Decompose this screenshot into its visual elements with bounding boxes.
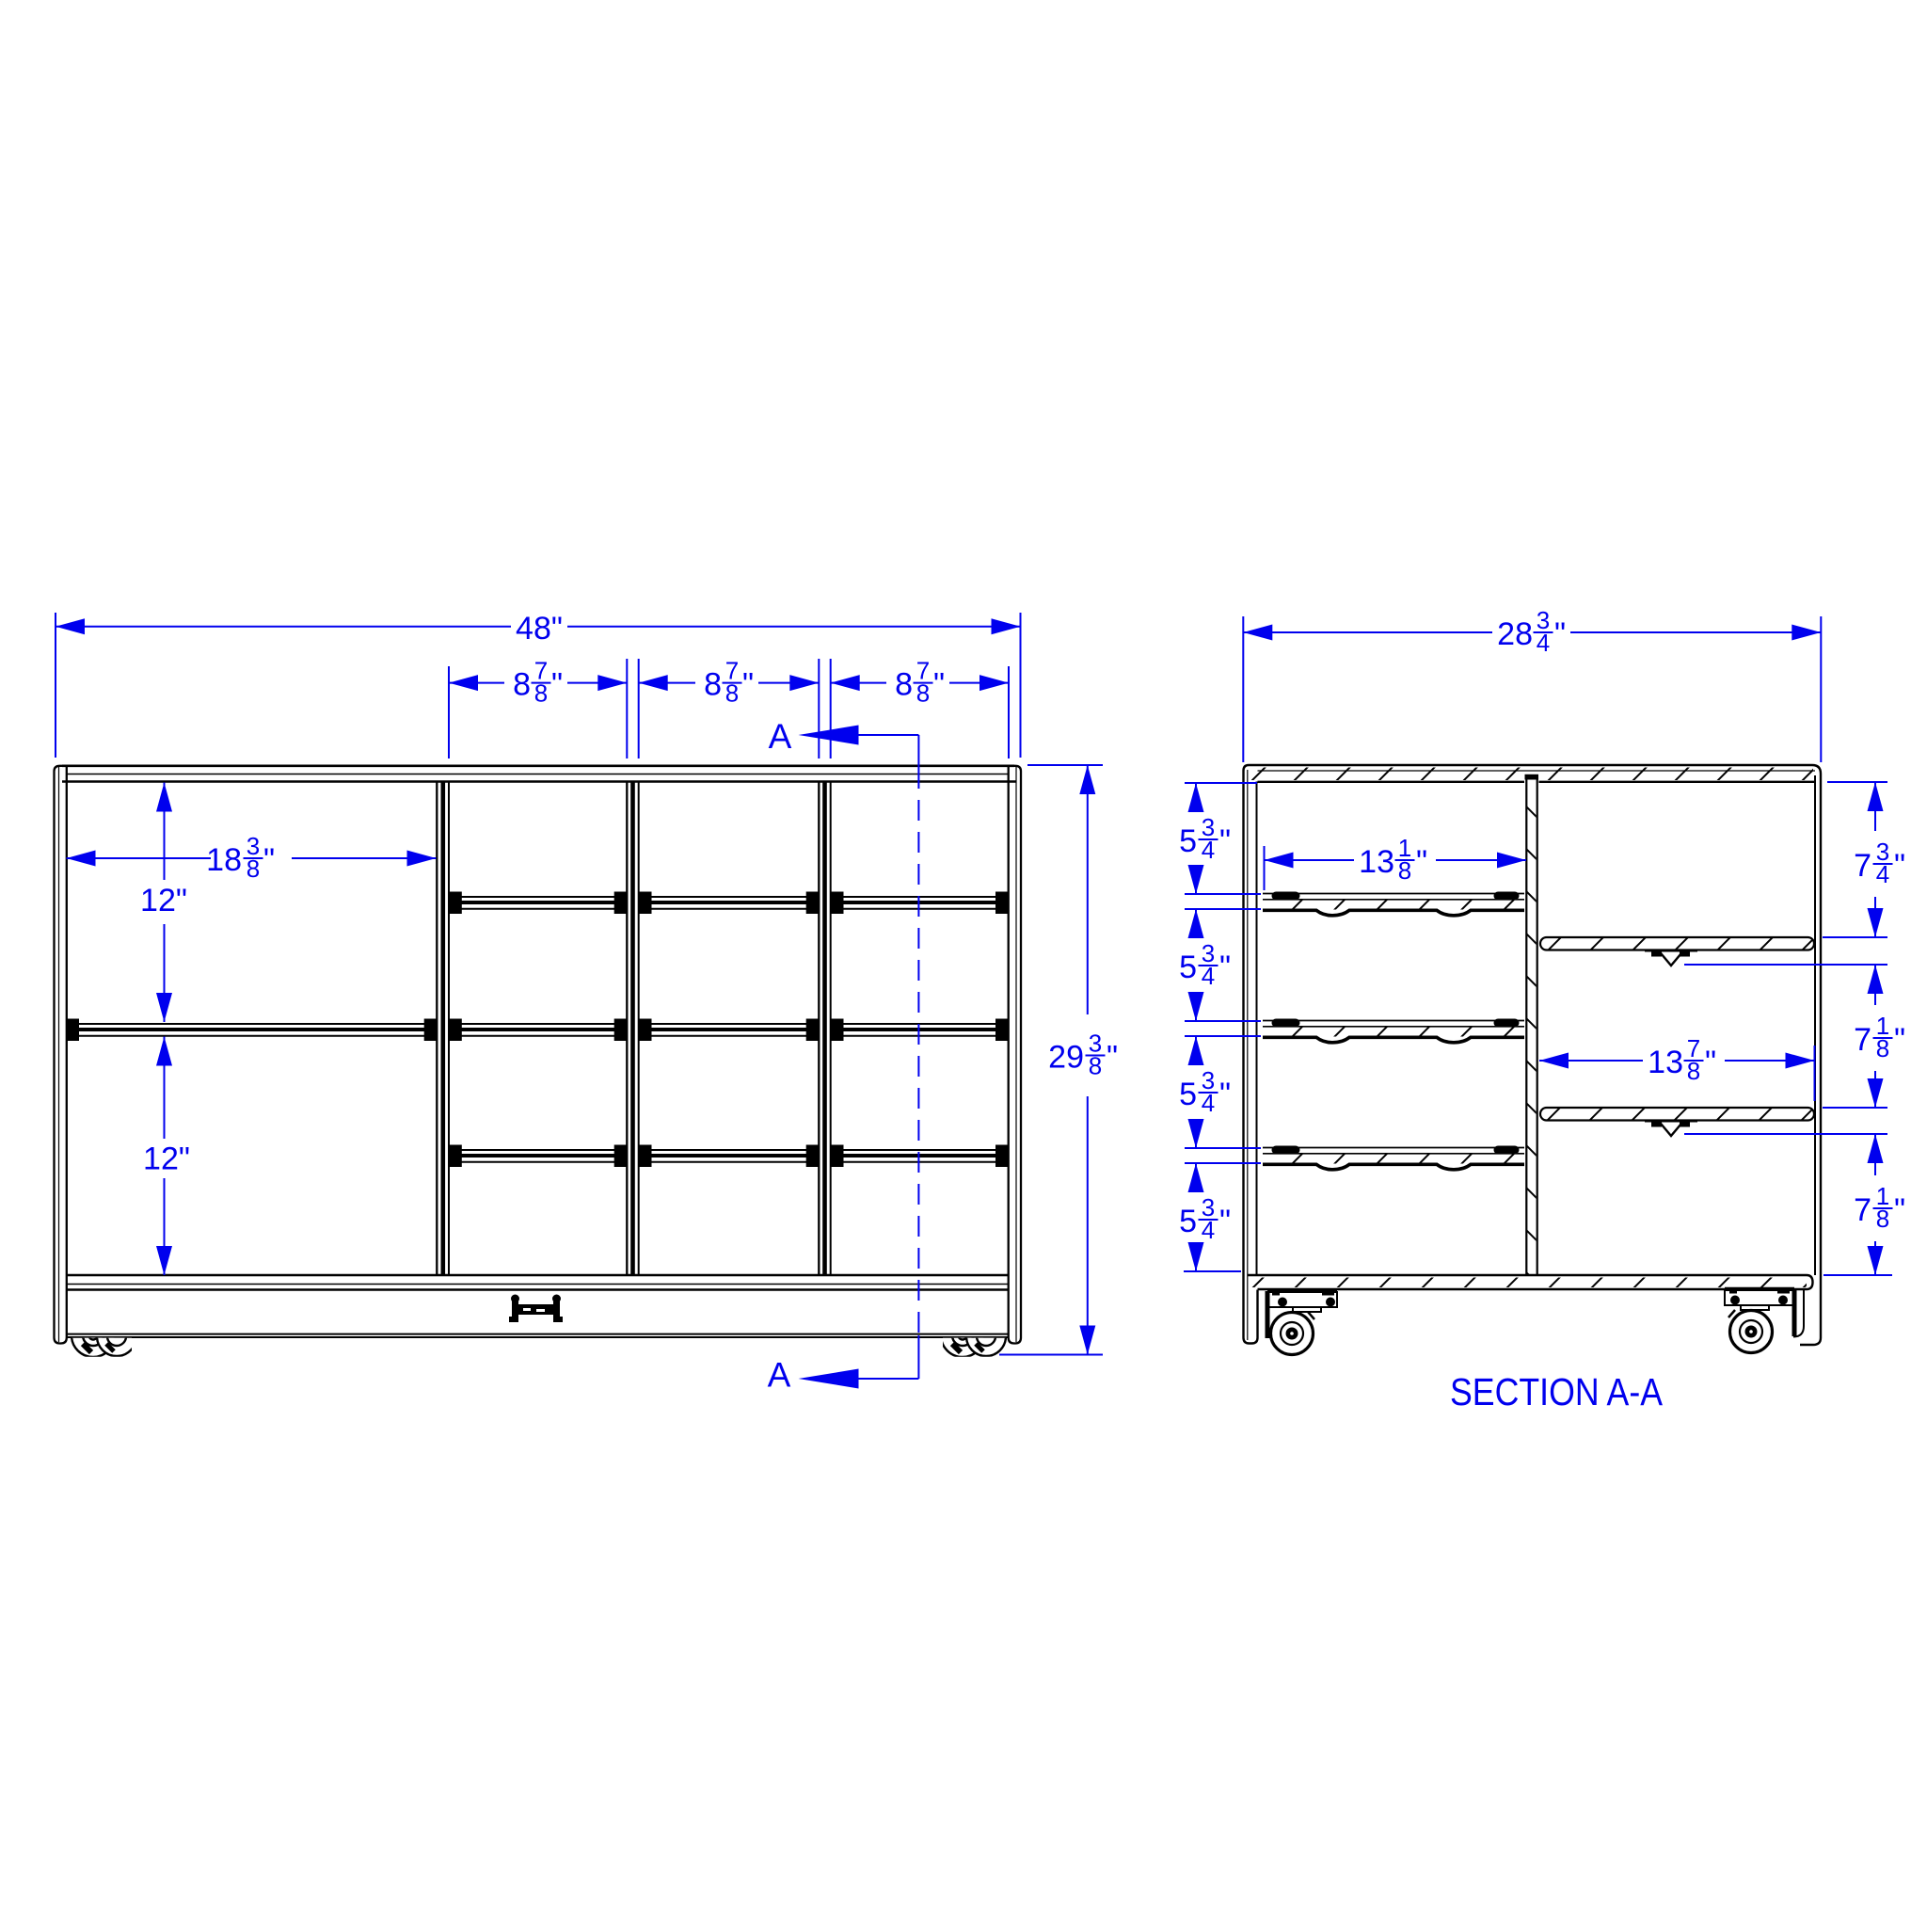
svg-text:4: 4 bbox=[1202, 1089, 1215, 1117]
svg-text:8: 8 bbox=[1876, 1205, 1889, 1233]
svg-text:5: 5 bbox=[1179, 1077, 1197, 1112]
svg-text:12": 12" bbox=[140, 883, 187, 918]
svg-text:4: 4 bbox=[1202, 836, 1215, 864]
svg-text:": " bbox=[1219, 950, 1231, 985]
svg-text:5: 5 bbox=[1179, 1204, 1197, 1239]
svg-text:SECTION A-A: SECTION A-A bbox=[1450, 1370, 1664, 1413]
svg-text:": " bbox=[551, 667, 563, 703]
svg-text:8: 8 bbox=[247, 854, 260, 883]
svg-text:": " bbox=[1705, 1045, 1716, 1080]
svg-text:5: 5 bbox=[1179, 823, 1197, 859]
svg-text:13: 13 bbox=[1359, 844, 1394, 880]
svg-text:4: 4 bbox=[1202, 1216, 1215, 1244]
svg-text:": " bbox=[1219, 1077, 1231, 1112]
svg-text:18: 18 bbox=[206, 842, 242, 878]
svg-text:8: 8 bbox=[725, 679, 739, 708]
svg-text:": " bbox=[1219, 1204, 1231, 1239]
svg-text:": " bbox=[1219, 823, 1231, 859]
svg-text:7: 7 bbox=[1854, 848, 1871, 884]
svg-text:4: 4 bbox=[1202, 962, 1215, 990]
svg-text:": " bbox=[1894, 1192, 1905, 1228]
svg-text:A: A bbox=[768, 1356, 791, 1395]
svg-text:": " bbox=[1107, 1040, 1118, 1076]
svg-text:4: 4 bbox=[1537, 629, 1550, 657]
svg-text:": " bbox=[742, 667, 754, 703]
svg-text:": " bbox=[1894, 848, 1905, 884]
svg-text:8: 8 bbox=[1876, 1034, 1889, 1062]
svg-text:": " bbox=[1554, 616, 1566, 652]
svg-text:8: 8 bbox=[534, 679, 548, 708]
svg-text:7: 7 bbox=[1854, 1022, 1871, 1058]
svg-text:12": 12" bbox=[143, 1142, 190, 1177]
svg-text:8: 8 bbox=[916, 679, 930, 708]
svg-text:5: 5 bbox=[1179, 950, 1197, 985]
svg-text:48": 48" bbox=[516, 611, 563, 647]
svg-text:A: A bbox=[769, 717, 792, 756]
svg-text:8: 8 bbox=[513, 667, 531, 703]
svg-text:8: 8 bbox=[1089, 1052, 1102, 1080]
svg-text:8: 8 bbox=[1398, 856, 1411, 885]
svg-text:7: 7 bbox=[1854, 1192, 1871, 1228]
svg-text:": " bbox=[933, 667, 945, 703]
svg-text:13: 13 bbox=[1648, 1045, 1683, 1080]
svg-text:4: 4 bbox=[1876, 860, 1889, 888]
svg-text:": " bbox=[1416, 844, 1427, 880]
svg-text:": " bbox=[263, 842, 275, 878]
svg-text:": " bbox=[1894, 1022, 1905, 1058]
svg-text:28: 28 bbox=[1497, 616, 1533, 652]
svg-text:29: 29 bbox=[1048, 1040, 1084, 1076]
svg-text:8: 8 bbox=[1687, 1057, 1700, 1085]
svg-text:8: 8 bbox=[704, 667, 722, 703]
svg-text:8: 8 bbox=[895, 667, 913, 703]
